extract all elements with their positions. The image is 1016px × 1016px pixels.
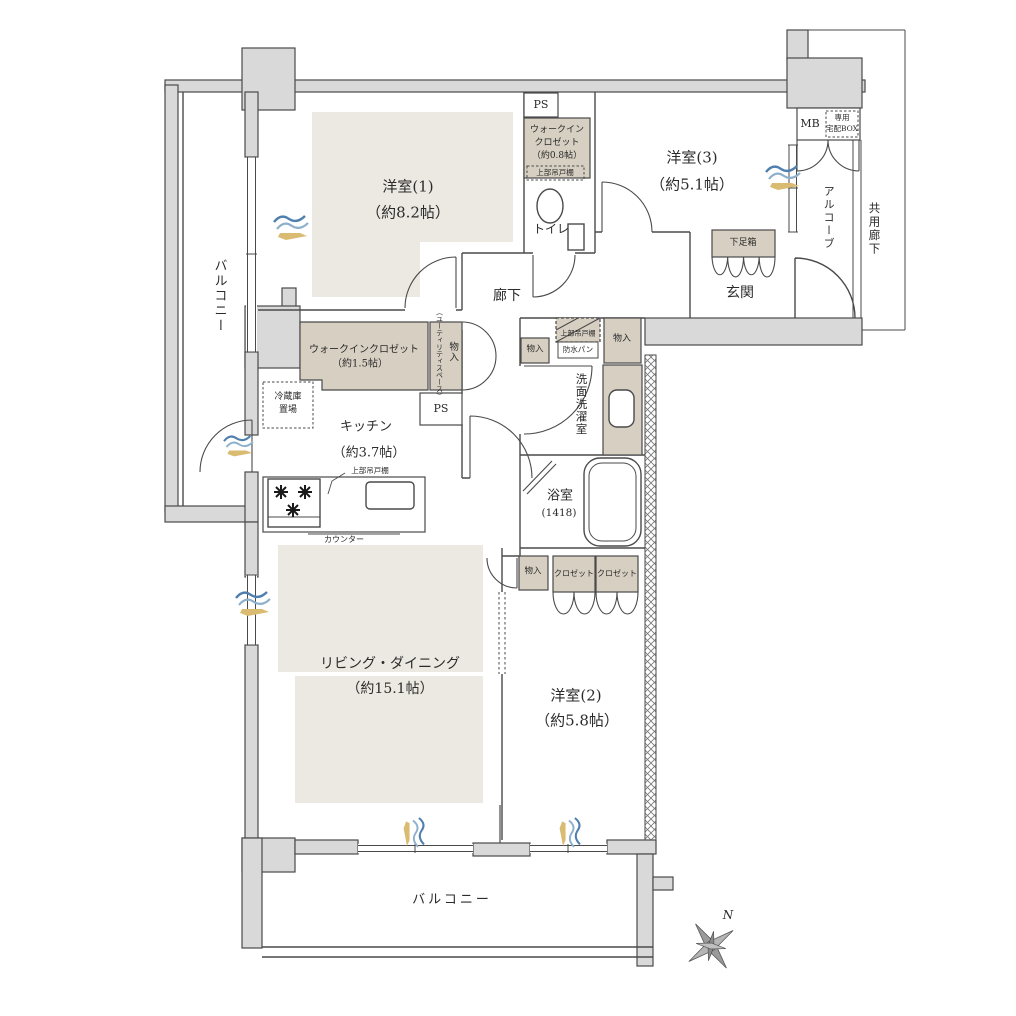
- door-swings: [200, 140, 859, 614]
- bedroom2-size: （約5.8帖）: [535, 711, 619, 731]
- bedroom2-label: 洋室(2): [550, 686, 601, 706]
- wic08-label-1: ウォークイン: [530, 125, 584, 137]
- bath-label: 浴室: [547, 489, 573, 506]
- washroom-shelf-label: 上部吊戸棚: [561, 329, 596, 338]
- shoe-cabinet-label: 下足箱: [729, 238, 756, 250]
- floorplan-drawing: [0, 0, 1016, 1016]
- living-dining-size: （約15.1帖）: [346, 680, 433, 698]
- wic15-size: （約1.5帖）: [332, 358, 388, 371]
- balcony-left-label: バルコニー: [210, 259, 227, 334]
- hallway-label: 廊下: [493, 287, 521, 305]
- kitchen-size: （約3.7帖）: [333, 446, 406, 463]
- fridge-space-label-2: 置場: [279, 405, 297, 417]
- closet1-label: クロゼット: [554, 569, 594, 579]
- wic08-label-2: クロゼット: [534, 138, 579, 150]
- toilet-label: トイレ: [533, 222, 569, 238]
- closet2-label: クロゼット: [597, 569, 637, 579]
- kitchen-label: キッチン: [340, 420, 392, 437]
- bath-size: (1418): [542, 507, 577, 521]
- washbasin-icon: [609, 390, 634, 427]
- wic15-label: ウォークインクロゼット: [309, 344, 419, 357]
- bedroom1-label: 洋室(1): [382, 177, 433, 197]
- fridge-space-label-1: 冷蔵庫: [274, 392, 301, 404]
- delivery-box-label-1: 専用: [835, 113, 850, 123]
- ld-storage-label: 物入: [524, 566, 541, 577]
- mb-label: MB: [800, 117, 819, 131]
- ps-top-label: PS: [534, 98, 549, 112]
- living-dining-label: リビング・ダイニング: [320, 655, 460, 673]
- shared-corridor-label: 共用廊下: [867, 202, 882, 256]
- floorplan-canvas: バルコニー 洋室(1) （約8.2帖） PS ウォークイン クロゼット （約0.…: [0, 0, 1016, 1016]
- toilet-icon: [537, 189, 563, 223]
- utility-note-label: （ユーティリティスペース）: [434, 309, 443, 400]
- wic08-size: （約0.8帖）: [532, 151, 582, 163]
- ps-mid-label: PS: [434, 402, 449, 416]
- utility-storage-label: 物入: [446, 342, 458, 363]
- bedroom3-label: 洋室(3): [666, 148, 717, 168]
- balcony-bottom-label: バルコニー: [412, 893, 492, 910]
- kitchen-shelf-label: 上部吊戸棚: [351, 466, 389, 476]
- washroom-label: 洗面洗濯室: [574, 373, 589, 436]
- compass-north-label: N: [723, 908, 734, 924]
- alcove-label: アルコーブ: [821, 186, 835, 251]
- bedroom3-size: （約5.1帖）: [650, 175, 734, 195]
- washroom-storage-right-label: 物入: [613, 334, 631, 346]
- entrance-label: 玄関: [726, 284, 754, 302]
- bedroom1-size: （約8.2帖）: [366, 203, 450, 223]
- delivery-box-label-2: 宅配BOX: [826, 124, 858, 134]
- kitchen-sink-icon: [366, 482, 414, 509]
- toilet-tank: [568, 224, 584, 250]
- compass-icon: [673, 908, 748, 983]
- toilet-shelf-label: 上部吊戸棚: [536, 168, 574, 178]
- crosshatch-strip: [645, 355, 656, 840]
- drain-pan-label: 防水パン: [563, 345, 593, 355]
- counter-label: カウンター: [324, 535, 364, 545]
- washroom-storage-left-label: 物入: [526, 344, 543, 355]
